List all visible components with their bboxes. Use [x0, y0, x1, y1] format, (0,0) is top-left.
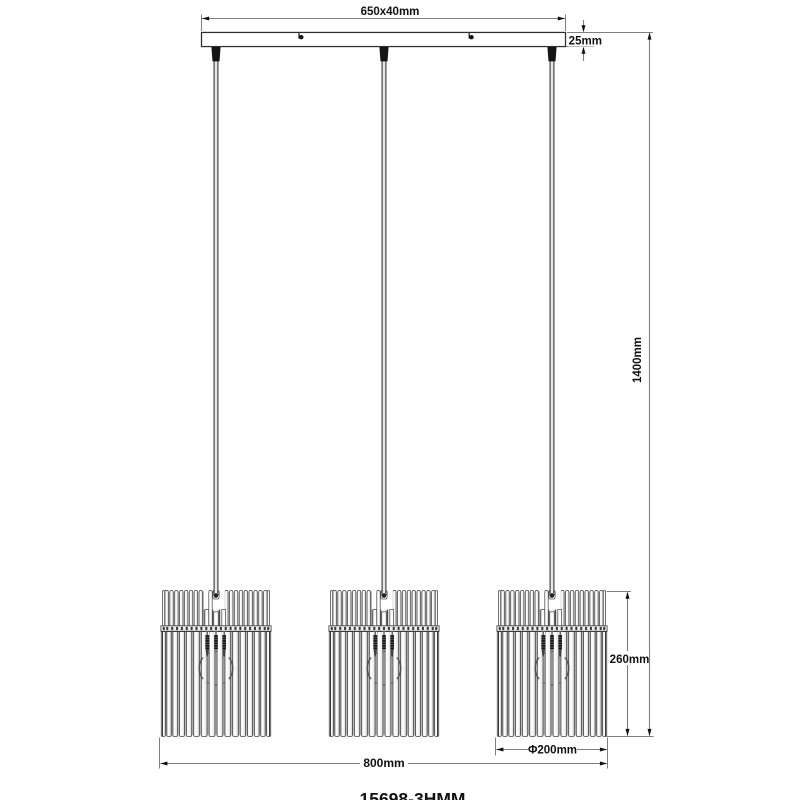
svg-text:650x40mm: 650x40mm — [361, 6, 420, 18]
svg-text:800mm: 800mm — [363, 756, 404, 770]
svg-text:1400mm: 1400mm — [632, 337, 644, 383]
svg-text:Φ200mm: Φ200mm — [528, 745, 577, 757]
svg-text:25mm: 25mm — [569, 36, 602, 48]
svg-text:260mm: 260mm — [610, 654, 650, 666]
svg-text:15698-3HMM: 15698-3HMM — [359, 789, 465, 800]
